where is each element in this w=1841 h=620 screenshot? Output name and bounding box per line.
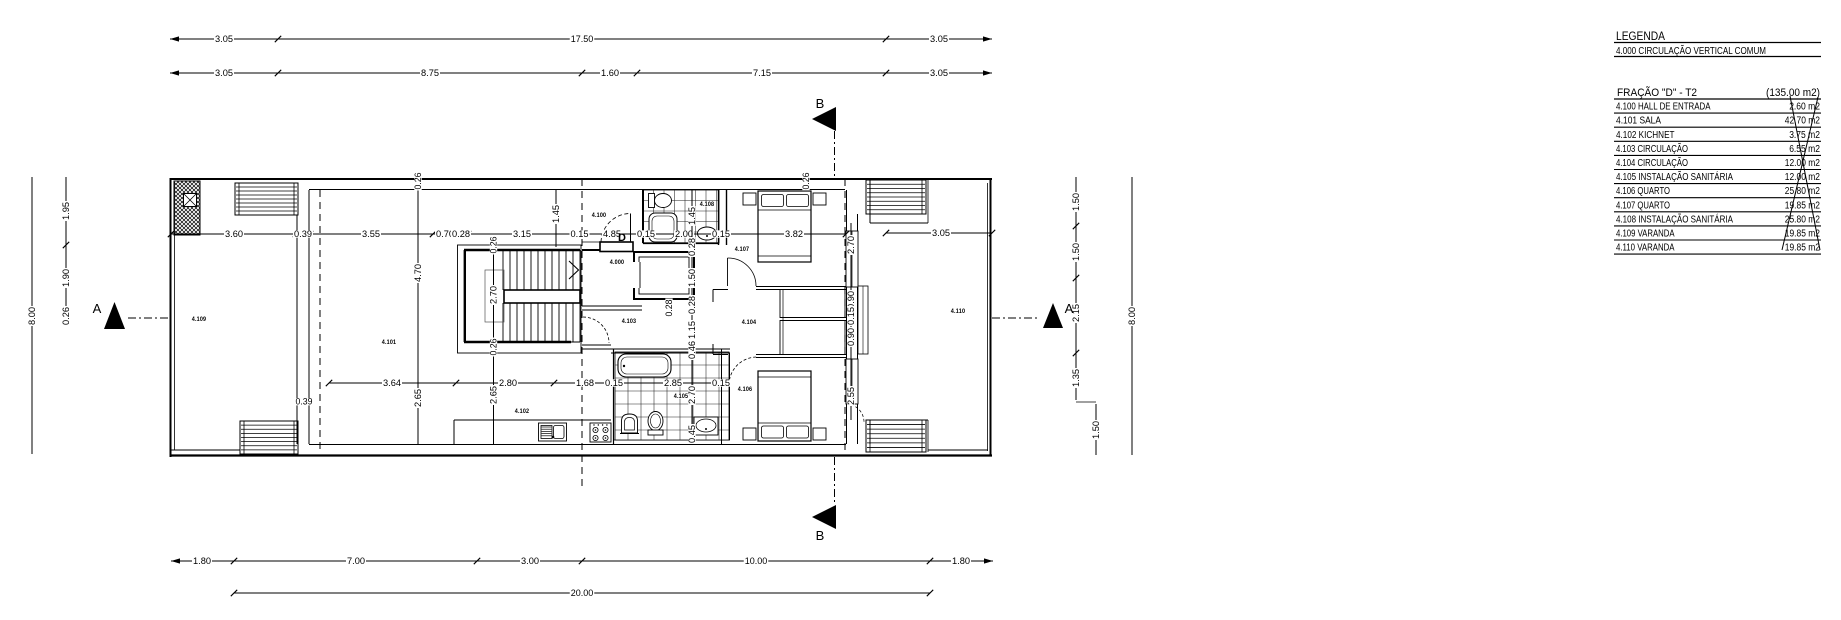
svg-text:2.85: 2.85 bbox=[664, 378, 682, 388]
svg-text:4.000: 4.000 bbox=[610, 260, 625, 266]
svg-text:0.15: 0.15 bbox=[712, 378, 730, 388]
svg-text:1.45: 1.45 bbox=[687, 207, 697, 225]
svg-text:4.103: 4.103 bbox=[622, 319, 637, 325]
svg-text:0.28: 0.28 bbox=[687, 296, 697, 314]
svg-text:25.80 m2: 25.80 m2 bbox=[1785, 186, 1821, 197]
svg-text:0.26: 0.26 bbox=[801, 173, 811, 190]
svg-text:4.110 VARANDA: 4.110 VARANDA bbox=[1616, 243, 1675, 254]
svg-text:0.15: 0.15 bbox=[846, 307, 856, 325]
svg-text:2.65: 2.65 bbox=[413, 389, 423, 407]
svg-text:FRAÇÃO "D" - T2: FRAÇÃO "D" - T2 bbox=[1617, 86, 1697, 99]
svg-text:0.45: 0.45 bbox=[687, 425, 697, 443]
svg-text:0.15: 0.15 bbox=[712, 229, 730, 239]
svg-text:4.109 VARANDA: 4.109 VARANDA bbox=[1616, 229, 1675, 240]
svg-text:20.00: 20.00 bbox=[571, 588, 594, 598]
svg-text:4.103 CIRCULAÇÃO: 4.103 CIRCULAÇÃO bbox=[1616, 142, 1688, 155]
svg-text:8.00: 8.00 bbox=[1127, 307, 1137, 325]
svg-text:0.15: 0.15 bbox=[605, 378, 623, 388]
svg-text:3.64: 3.64 bbox=[383, 378, 401, 388]
svg-text:1.15: 1.15 bbox=[687, 321, 697, 339]
svg-text:1.90: 1.90 bbox=[61, 269, 71, 287]
svg-text:B: B bbox=[816, 96, 825, 111]
svg-text:A: A bbox=[1065, 301, 1074, 316]
svg-text:0.28: 0.28 bbox=[452, 229, 470, 239]
svg-text:3.15: 3.15 bbox=[513, 229, 531, 239]
svg-text:1.35: 1.35 bbox=[1071, 369, 1081, 387]
svg-text:4.109: 4.109 bbox=[192, 317, 207, 323]
svg-text:3.05: 3.05 bbox=[215, 34, 233, 44]
svg-text:1.50: 1.50 bbox=[1091, 421, 1101, 439]
svg-text:4.101 SALA: 4.101 SALA bbox=[1616, 116, 1661, 127]
svg-text:12.00 m2: 12.00 m2 bbox=[1785, 172, 1821, 183]
svg-text:1.68: 1.68 bbox=[576, 378, 594, 388]
svg-text:4.000 CIRCULAÇÃO VERTICAL COMU: 4.000 CIRCULAÇÃO VERTICAL COMUM bbox=[1616, 44, 1766, 57]
svg-text:1.50: 1.50 bbox=[1071, 243, 1081, 261]
svg-text:4.104 CIRCULAÇÃO: 4.104 CIRCULAÇÃO bbox=[1616, 156, 1688, 169]
svg-text:1.95: 1.95 bbox=[61, 202, 71, 220]
svg-text:3.60: 3.60 bbox=[225, 229, 243, 239]
svg-text:19.85 m2: 19.85 m2 bbox=[1785, 229, 1821, 240]
svg-text:0.26: 0.26 bbox=[61, 307, 71, 325]
svg-text:4.102: 4.102 bbox=[515, 409, 530, 415]
svg-text:2.55: 2.55 bbox=[846, 387, 856, 405]
svg-text:0.26: 0.26 bbox=[488, 237, 498, 254]
svg-text:4.100 HALL DE ENTRADA: 4.100 HALL DE ENTRADA bbox=[1616, 102, 1711, 113]
svg-text:4.107: 4.107 bbox=[735, 247, 750, 253]
svg-text:3.82: 3.82 bbox=[785, 229, 803, 239]
svg-text:7.00: 7.00 bbox=[347, 556, 365, 566]
svg-text:4.102 KICHNET: 4.102 KICHNET bbox=[1616, 130, 1675, 141]
svg-text:1.45: 1.45 bbox=[551, 205, 561, 223]
svg-text:0.28: 0.28 bbox=[664, 300, 674, 317]
svg-text:4.108: 4.108 bbox=[700, 202, 715, 208]
svg-text:0.26: 0.26 bbox=[413, 173, 423, 190]
svg-text:B: B bbox=[816, 528, 825, 543]
svg-text:(135.00 m2): (135.00 m2) bbox=[1766, 87, 1820, 99]
svg-text:2.65: 2.65 bbox=[488, 386, 498, 404]
svg-text:LEGENDA: LEGENDA bbox=[1616, 31, 1665, 43]
svg-text:4.106 QUARTO: 4.106 QUARTO bbox=[1616, 186, 1670, 197]
svg-text:4.105: 4.105 bbox=[674, 394, 689, 400]
svg-text:0.28: 0.28 bbox=[687, 238, 697, 256]
svg-text:0.46: 0.46 bbox=[687, 341, 697, 359]
svg-text:42.70 m2: 42.70 m2 bbox=[1785, 116, 1821, 127]
svg-text:17.50: 17.50 bbox=[571, 34, 594, 44]
svg-text:4.106: 4.106 bbox=[738, 387, 753, 393]
svg-text:0.15: 0.15 bbox=[637, 229, 655, 239]
svg-text:0.15: 0.15 bbox=[571, 229, 589, 239]
svg-text:19.85 m2: 19.85 m2 bbox=[1785, 200, 1821, 211]
svg-text:4.70: 4.70 bbox=[413, 264, 423, 282]
svg-text:4.110: 4.110 bbox=[951, 309, 966, 315]
svg-text:1.60: 1.60 bbox=[601, 68, 619, 78]
svg-text:3.05: 3.05 bbox=[930, 68, 948, 78]
svg-text:3.55: 3.55 bbox=[362, 229, 380, 239]
svg-text:4.105 INSTALAÇÃO SANITÁRIA: 4.105 INSTALAÇÃO SANITÁRIA bbox=[1616, 170, 1733, 183]
svg-text:3.00: 3.00 bbox=[521, 556, 539, 566]
svg-text:4.101: 4.101 bbox=[382, 340, 397, 346]
svg-text:2.70: 2.70 bbox=[846, 236, 856, 254]
svg-text:4.104: 4.104 bbox=[742, 320, 757, 326]
svg-text:1.50: 1.50 bbox=[1071, 193, 1081, 211]
svg-text:0.26: 0.26 bbox=[488, 339, 498, 356]
svg-text:1.50: 1.50 bbox=[687, 269, 697, 287]
svg-text:0.90: 0.90 bbox=[846, 328, 856, 346]
svg-text:3.05: 3.05 bbox=[930, 34, 948, 44]
svg-text:D: D bbox=[618, 232, 626, 244]
svg-text:8.75: 8.75 bbox=[421, 68, 439, 78]
svg-text:0.39: 0.39 bbox=[296, 397, 313, 407]
svg-text:4.100: 4.100 bbox=[592, 213, 607, 219]
svg-text:3.05: 3.05 bbox=[932, 228, 950, 238]
svg-text:8.00: 8.00 bbox=[27, 307, 37, 325]
svg-text:3.05: 3.05 bbox=[215, 68, 233, 78]
svg-text:1.80: 1.80 bbox=[193, 556, 211, 566]
svg-text:2.70: 2.70 bbox=[488, 286, 498, 304]
svg-text:A: A bbox=[93, 301, 102, 316]
svg-text:19.85 m2: 19.85 m2 bbox=[1785, 243, 1821, 254]
svg-text:0.39: 0.39 bbox=[294, 229, 312, 239]
svg-text:4.107 QUARTO: 4.107 QUARTO bbox=[1616, 200, 1670, 211]
svg-text:2.80: 2.80 bbox=[499, 378, 517, 388]
svg-text:1.80: 1.80 bbox=[952, 556, 970, 566]
svg-text:10.00: 10.00 bbox=[745, 556, 768, 566]
svg-text:4.108 INSTALAÇÃO SANITÁRIA: 4.108 INSTALAÇÃO SANITÁRIA bbox=[1616, 212, 1733, 225]
svg-text:7.15: 7.15 bbox=[753, 68, 771, 78]
svg-text:3.75 m2: 3.75 m2 bbox=[1789, 130, 1820, 141]
